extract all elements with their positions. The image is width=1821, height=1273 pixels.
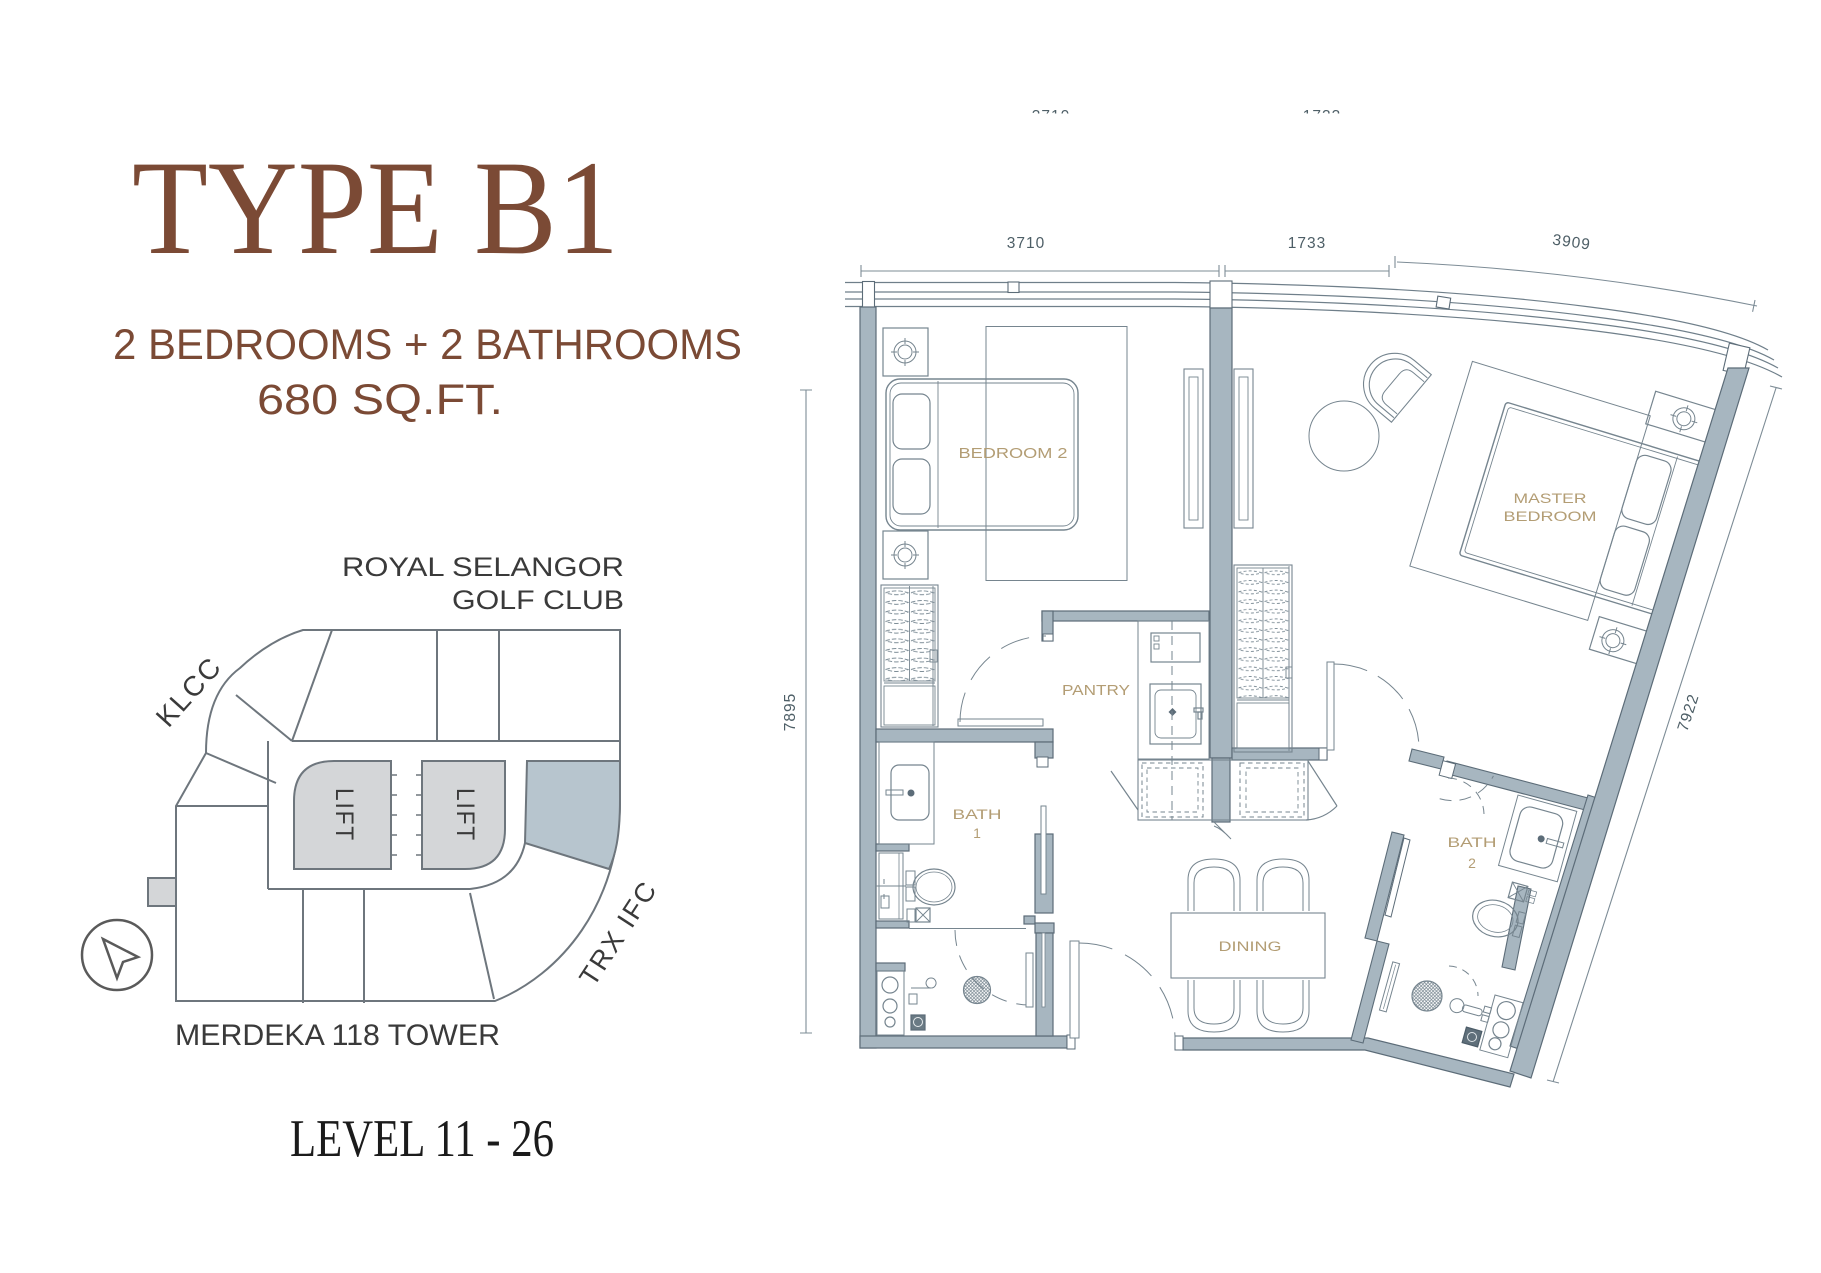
svg-text:LIFT: LIFT (330, 788, 358, 842)
svg-text:2 BEDROOMS + 2 BATHROOMS: 2 BEDROOMS + 2 BATHROOMS (113, 321, 742, 369)
svg-text:BEDROOM 2: BEDROOM 2 (959, 445, 1068, 462)
svg-text:7922: 7922 (1675, 692, 1703, 734)
svg-text:ROYAL SELANGOR: ROYAL SELANGOR (342, 552, 624, 582)
svg-text:1733: 1733 (1303, 108, 1341, 125)
svg-text:1733: 1733 (1288, 235, 1326, 252)
svg-text:LIFT: LIFT (451, 788, 479, 842)
svg-text:2: 2 (1468, 855, 1476, 871)
svg-text:PANTRY: PANTRY (1062, 682, 1130, 699)
svg-text:1: 1 (973, 825, 981, 841)
svg-text:BEDROOM: BEDROOM (1504, 508, 1597, 524)
svg-text:3909: 3909 (1551, 231, 1591, 253)
svg-text:MERDEKA 118 TOWER: MERDEKA 118 TOWER (175, 1019, 500, 1052)
svg-text:BATH: BATH (953, 806, 1002, 822)
svg-text:LEVEL 11 - 26: LEVEL 11 - 26 (290, 1110, 554, 1168)
svg-text:BATH: BATH (1448, 834, 1497, 850)
svg-text:MASTER: MASTER (1514, 490, 1587, 506)
svg-text:7895: 7895 (782, 693, 799, 731)
svg-text:680 SQ.FT.: 680 SQ.FT. (257, 376, 503, 424)
svg-text:3710: 3710 (1032, 108, 1070, 125)
svg-text:3710: 3710 (1007, 235, 1045, 252)
svg-text:TYPE B1: TYPE B1 (132, 134, 619, 283)
svg-text:DINING: DINING (1219, 939, 1282, 954)
svg-text:GOLF CLUB: GOLF CLUB (452, 585, 624, 615)
